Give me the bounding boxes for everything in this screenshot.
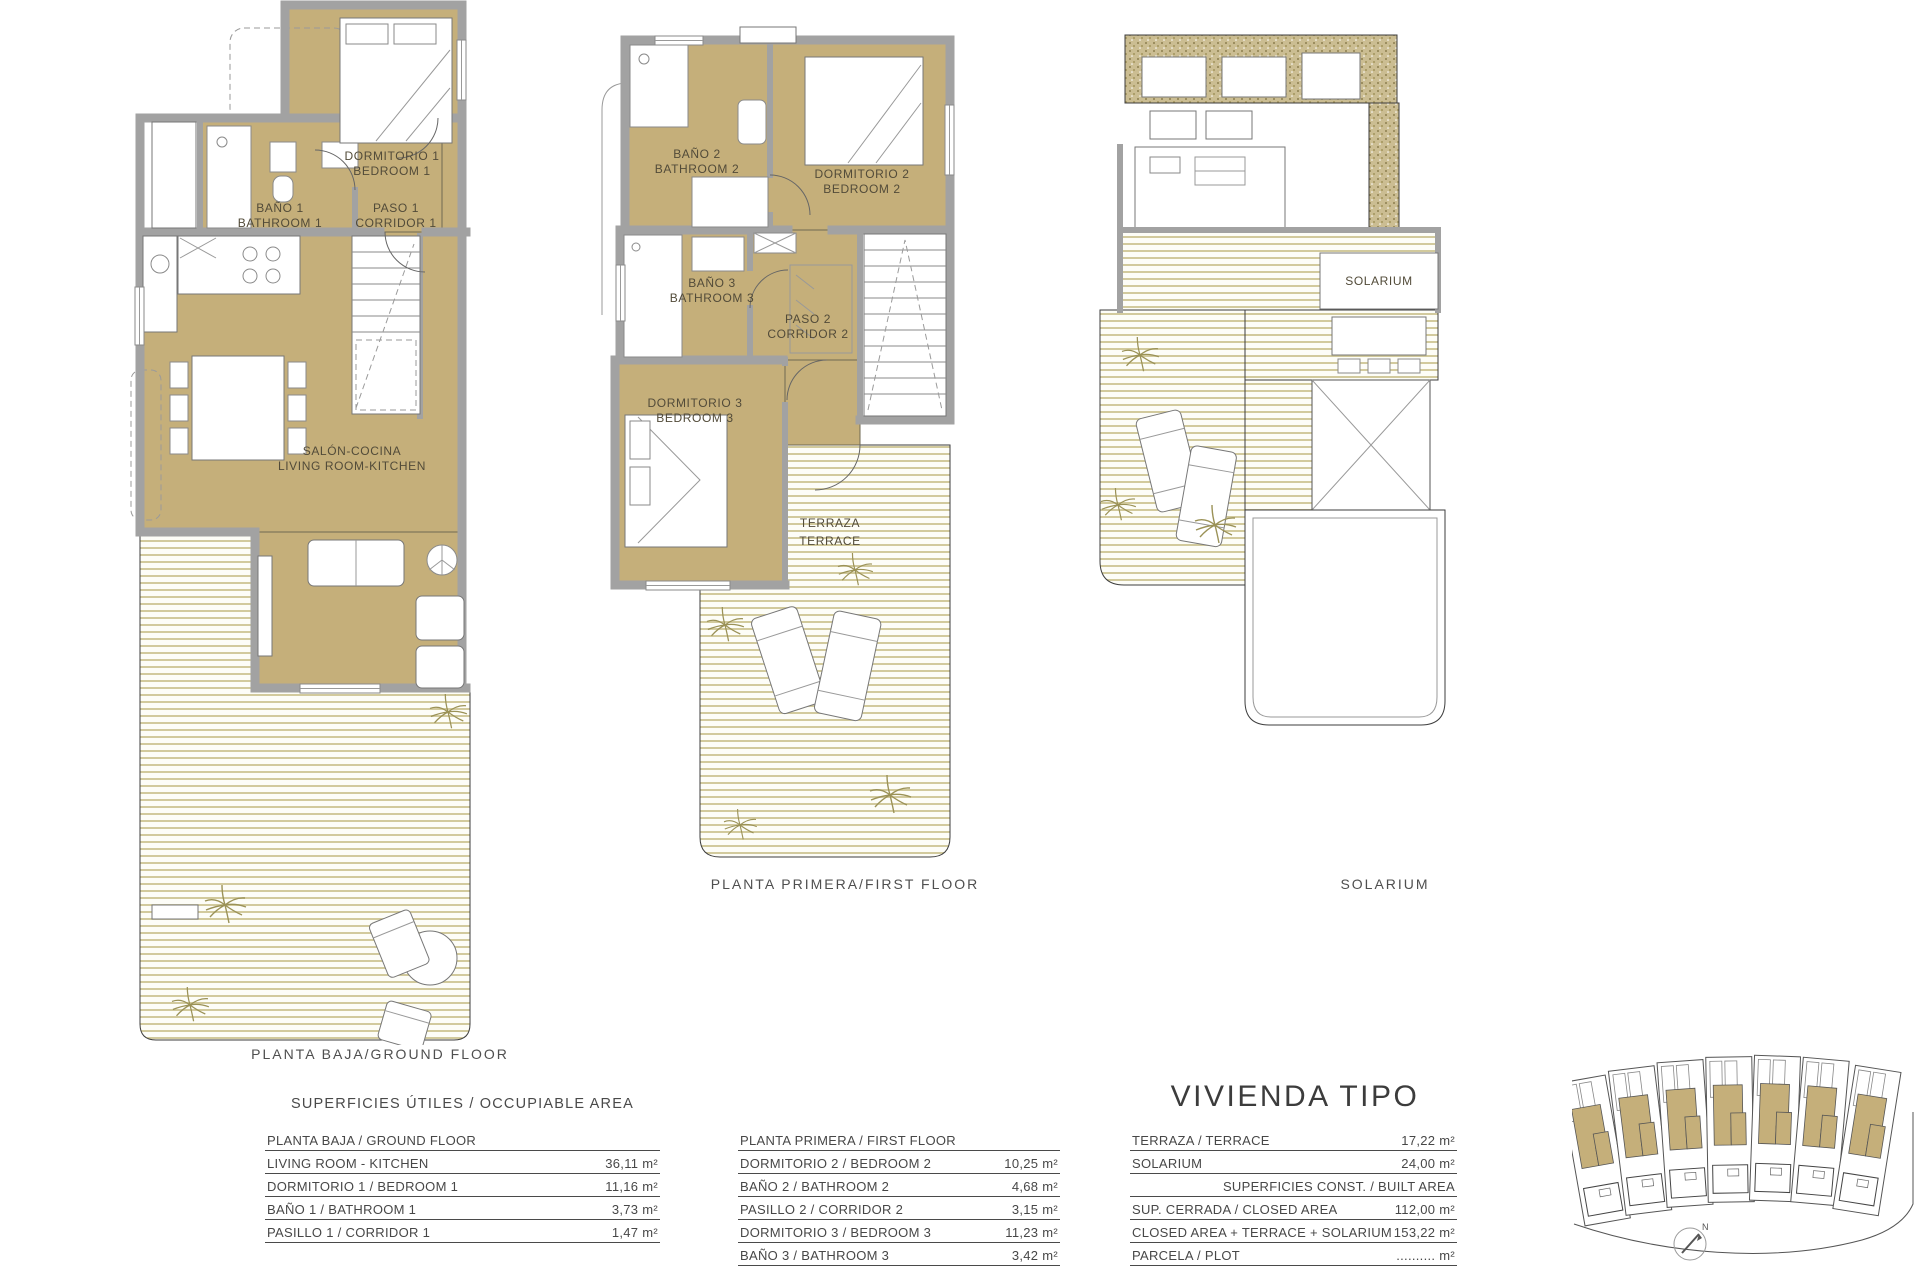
stair-skylight xyxy=(1312,380,1430,510)
room-label-bano1-en: BATHROOM 1 xyxy=(238,216,322,230)
north-label: N xyxy=(1702,1222,1709,1232)
solarium-plan: SOLARIUM xyxy=(1080,25,1500,865)
vivienda-tipo-title: VIVIENDA TIPO xyxy=(1130,1080,1460,1114)
first-floor-plan: BAÑO 2 BATHROOM 2 DORMITORIO 2 BEDROOM 2… xyxy=(600,25,970,865)
table-first-floor: PLANTA PRIMERA / FIRST FLOOR DORMITORIO … xyxy=(738,1128,1060,1266)
bed-2 xyxy=(805,57,923,165)
row-label: BAÑO 1 / BATHROOM 1 xyxy=(267,1202,416,1217)
row-label: DORMITORIO 1 / BEDROOM 1 xyxy=(267,1179,458,1194)
room-label-salon-en: LIVING ROOM-KITCHEN xyxy=(278,459,426,473)
table-row: BAÑO 2 / BATHROOM 2 4,68 m² xyxy=(738,1174,1060,1197)
table-summary: TERRAZA / TERRACE 17,22 m² SOLARIUM 24,0… xyxy=(1130,1128,1457,1266)
table-row: BAÑO 1 / BATHROOM 1 3,73 m² xyxy=(265,1197,660,1220)
plots xyxy=(1572,1055,1901,1226)
stairs xyxy=(864,234,946,416)
solarium-table xyxy=(1332,317,1426,373)
table-row: SOLARIUM 24,00 m² xyxy=(1130,1151,1457,1174)
room-label-paso2-es: PASO 2 xyxy=(785,312,831,326)
row-value: 3,73 m² xyxy=(612,1202,658,1217)
row-label: BAÑO 3 / BATHROOM 3 xyxy=(740,1248,889,1263)
room-label-paso1-es: PASO 1 xyxy=(373,201,419,215)
table-row: CLOSED AREA + TERRACE + SOLARIUM 153,22 … xyxy=(1130,1220,1457,1243)
table-header-row: PLANTA PRIMERA / FIRST FLOOR xyxy=(738,1128,1060,1151)
row-value: 11,23 m² xyxy=(1005,1225,1058,1240)
table-header: PLANTA PRIMERA / FIRST FLOOR xyxy=(740,1133,956,1148)
room-label-bano3-en: BATHROOM 3 xyxy=(670,291,754,305)
table-row: PASILLO 2 / CORRIDOR 2 3,15 m² xyxy=(738,1197,1060,1220)
stairs xyxy=(352,236,420,414)
row-value: 112,00 m² xyxy=(1395,1202,1455,1217)
room-label-terraza-en: TERRACE xyxy=(799,534,861,548)
plan-caption-first: PLANTA PRIMERA/FIRST FLOOR xyxy=(645,876,1045,892)
room-label-terraza-es: TERRAZA xyxy=(800,516,860,530)
room-label-bano2-es: BAÑO 2 xyxy=(673,147,721,161)
row-value: 11,16 m² xyxy=(605,1179,658,1194)
plan-caption-solarium: SOLARIUM xyxy=(1185,876,1585,892)
room-label-paso2-en: CORRIDOR 2 xyxy=(767,327,848,341)
table-row: PASILLO 1 / CORRIDOR 1 1,47 m² xyxy=(265,1220,660,1243)
table-header-row: PLANTA BAJA / GROUND FLOOR xyxy=(265,1128,660,1151)
table-row: TERRAZA / TERRACE 17,22 m² xyxy=(1130,1128,1457,1151)
room-label-bano1-es: BAÑO 1 xyxy=(256,201,304,215)
room-label-dorm2-es: DORMITORIO 2 xyxy=(815,167,910,181)
row-value: 24,00 m² xyxy=(1401,1156,1455,1171)
row-label: PASILLO 1 / CORRIDOR 1 xyxy=(267,1225,430,1240)
compass-icon: N xyxy=(1674,1222,1709,1260)
row-label: TERRAZA / TERRACE xyxy=(1132,1133,1270,1148)
row-label: PASILLO 2 / CORRIDOR 2 xyxy=(740,1202,903,1217)
table-header: PLANTA BAJA / GROUND FLOOR xyxy=(267,1133,476,1148)
row-label: LIVING ROOM - KITCHEN xyxy=(267,1156,429,1171)
row-value: 4,68 m² xyxy=(1012,1179,1058,1194)
room-label-dorm3-en: BEDROOM 3 xyxy=(656,411,733,425)
row-label: SUP. CERRADA / CLOSED AREA xyxy=(1132,1202,1338,1217)
room-label-dorm3-es: DORMITORIO 3 xyxy=(648,396,743,410)
row-label: DORMITORIO 3 / BEDROOM 3 xyxy=(740,1225,931,1240)
row-value: 3,42 m² xyxy=(1012,1248,1058,1263)
row-label: BAÑO 2 / BATHROOM 2 xyxy=(740,1179,889,1194)
table-row: DORMITORIO 1 / BEDROOM 1 11,16 m² xyxy=(265,1174,660,1197)
table-subheader-row: SUPERFICIES CONST. / BUILT AREA xyxy=(1130,1174,1457,1197)
room-label-paso1-en: CORRIDOR 1 xyxy=(355,216,436,230)
room-label-dorm1-es: DORMITORIO 1 xyxy=(345,149,440,163)
row-label: SUPERFICIES CONST. / BUILT AREA xyxy=(1223,1179,1455,1194)
row-value: 1,47 m² xyxy=(612,1225,658,1240)
row-value: 10,25 m² xyxy=(1004,1156,1058,1171)
row-label: SOLARIUM xyxy=(1132,1156,1202,1171)
table-row: DORMITORIO 3 / BEDROOM 3 11,23 m² xyxy=(738,1220,1060,1243)
table-row: BAÑO 3 / BATHROOM 3 3,42 m² xyxy=(738,1243,1060,1266)
row-label: PARCELA / PLOT xyxy=(1132,1248,1240,1263)
table-row: SUP. CERRADA / CLOSED AREA 112,00 m² xyxy=(1130,1197,1457,1220)
row-value: 153,22 m² xyxy=(1394,1225,1455,1240)
room-label-bano3-es: BAÑO 3 xyxy=(688,276,736,290)
room-label-dorm2-en: BEDROOM 2 xyxy=(823,182,900,196)
entry-closet xyxy=(152,122,196,228)
roof-vent xyxy=(740,27,796,43)
row-label: DORMITORIO 2 / BEDROOM 2 xyxy=(740,1156,931,1171)
table-ground-floor: PLANTA BAJA / GROUND FLOOR LIVING ROOM -… xyxy=(265,1128,660,1243)
room-label-salon-es: SALÓN-COCINA xyxy=(303,443,402,458)
room-label-dorm1-en: BEDROOM 1 xyxy=(353,164,430,178)
row-value: 3,15 m² xyxy=(1012,1202,1058,1217)
table-row: DORMITORIO 2 / BEDROOM 2 10,25 m² xyxy=(738,1151,1060,1174)
floorplan-sheet: BAÑO 1 BATHROOM 1 PASO 1 CORRIDOR 1 DORM… xyxy=(0,0,1920,1280)
ground-floor-plan: BAÑO 1 BATHROOM 1 PASO 1 CORRIDOR 1 DORM… xyxy=(130,0,540,1045)
summer-kitchen xyxy=(1135,147,1285,229)
roof-void xyxy=(1245,510,1445,725)
bed-3 xyxy=(625,415,727,547)
bed-1 xyxy=(340,18,452,143)
room-label-solarium: SOLARIUM xyxy=(1345,274,1412,288)
site-plan-thumbnail: N xyxy=(1572,1052,1917,1280)
row-value: .......... m² xyxy=(1396,1248,1455,1263)
room-label-bano2-en: BATHROOM 2 xyxy=(655,162,739,176)
plan-caption-ground: PLANTA BAJA/GROUND FLOOR xyxy=(130,1046,630,1062)
row-value: 36,11 m² xyxy=(605,1156,658,1171)
row-label: CLOSED AREA + TERRACE + SOLARIUM xyxy=(1132,1225,1392,1240)
table-row: PARCELA / PLOT .......... m² xyxy=(1130,1243,1457,1266)
table-row: LIVING ROOM - KITCHEN 36,11 m² xyxy=(265,1151,660,1174)
row-value: 17,22 m² xyxy=(1401,1133,1455,1148)
occupiable-area-title: SUPERFICIES ÚTILES / OCCUPIABLE AREA xyxy=(265,1096,660,1112)
